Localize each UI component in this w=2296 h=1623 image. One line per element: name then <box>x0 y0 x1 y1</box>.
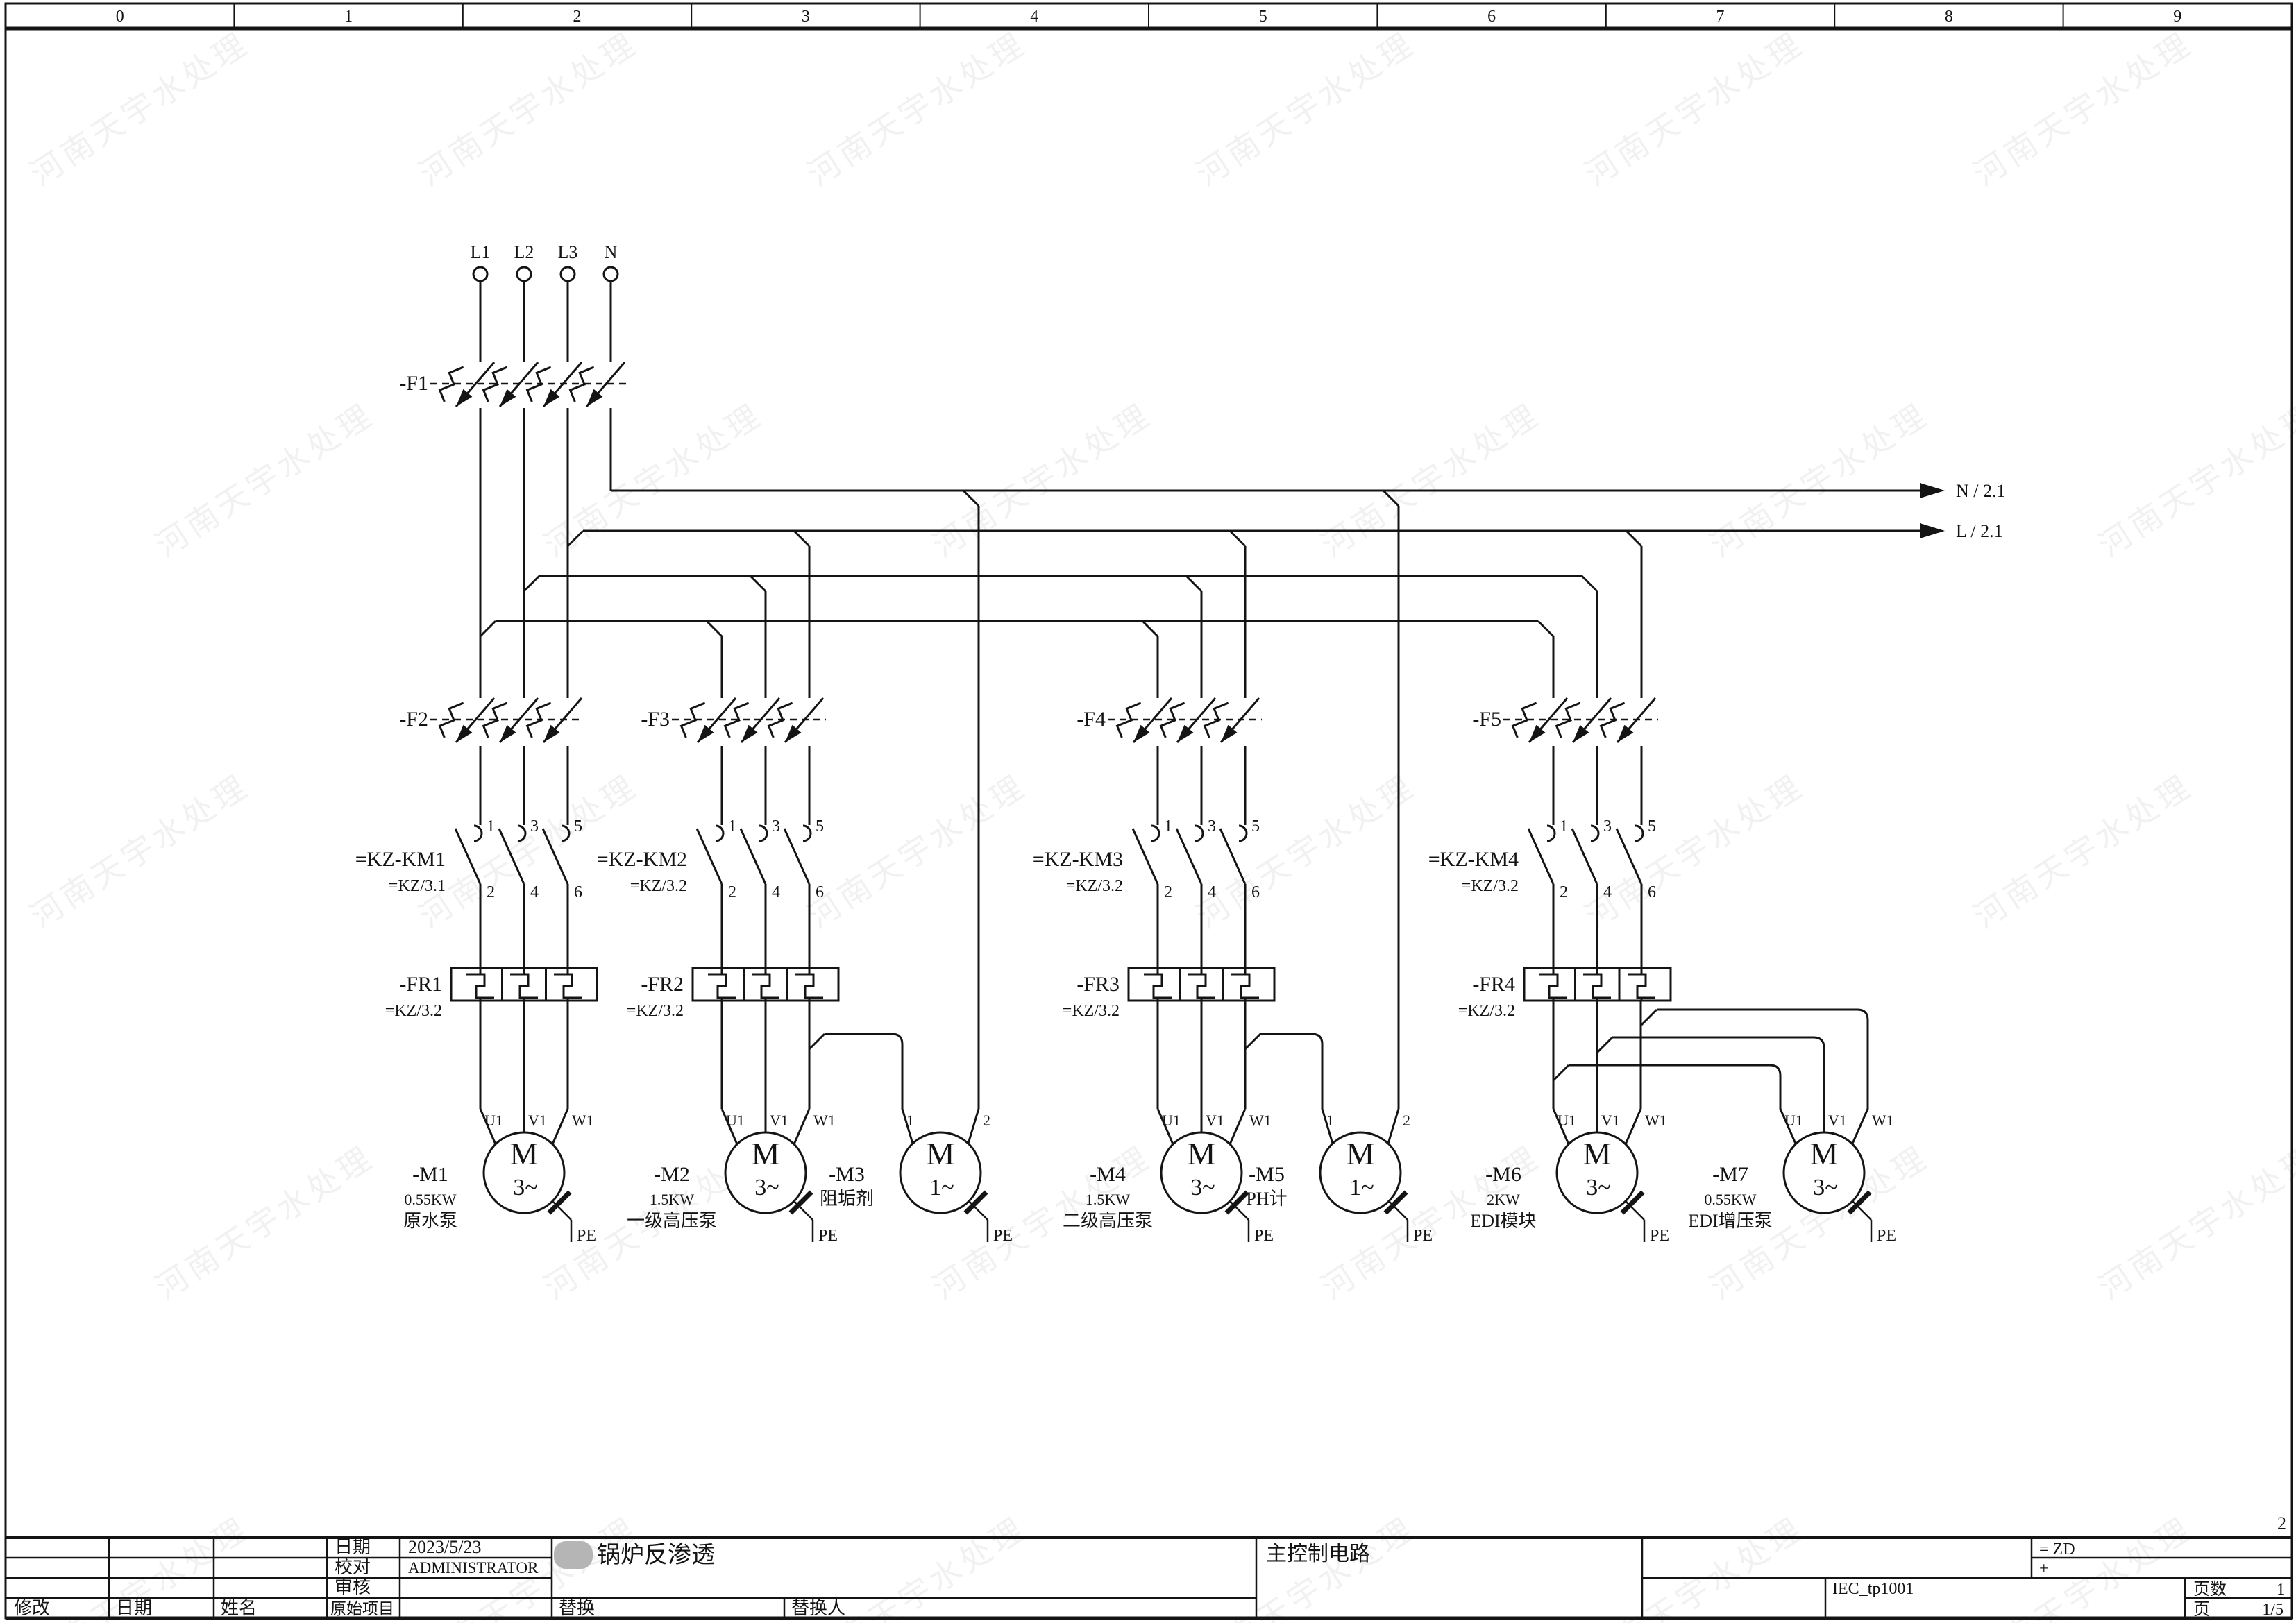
bus-jog <box>1553 1065 1569 1080</box>
watermark: 河南天宇水处理 <box>1704 396 1935 563</box>
watermark: 河南天宇水处理 <box>1968 767 2199 935</box>
contactor-label: =KZ-KM4 <box>1428 848 1519 871</box>
contactor-ref: =KZ/3.2 <box>630 877 687 895</box>
bus-jog <box>1626 531 1641 546</box>
contactor-ref: =KZ/3.2 <box>1462 877 1519 895</box>
terminal-circle <box>517 267 531 281</box>
contact-number: 2 <box>1560 883 1568 901</box>
motor-id: -M4 <box>1090 1163 1126 1186</box>
motor-name: 一级高压泵 <box>627 1211 717 1231</box>
contact-number: 1 <box>487 817 495 835</box>
template-name: IEC_tp1001 <box>1832 1580 1914 1598</box>
bus-jog <box>750 576 766 591</box>
ruler-number: 3 <box>802 8 810 26</box>
wire <box>1626 1109 1641 1144</box>
contact-terminal <box>1547 826 1555 841</box>
bus-jog <box>1597 1037 1612 1053</box>
motor-type: 1~ <box>929 1175 954 1200</box>
contactor-label: =KZ-KM3 <box>1033 848 1123 871</box>
bus-jog <box>1245 1034 1260 1049</box>
watermark: 河南天宇水处理 <box>24 25 255 192</box>
watermark: 河南天宇水处理 <box>413 25 644 192</box>
motor-id: -M5 <box>1249 1163 1285 1186</box>
drawing-frame <box>6 3 2292 1618</box>
ruler-number: 2 <box>573 8 582 26</box>
contact-number: 2 <box>487 883 495 901</box>
watermark: 河南天宇水处理 <box>1968 1510 2199 1623</box>
bus-jog <box>524 576 539 591</box>
contact-terminal <box>1151 826 1159 841</box>
contact-number: 3 <box>1208 817 1216 835</box>
bus-jog <box>1641 1010 1657 1025</box>
wire-path <box>825 1034 913 1144</box>
wire <box>794 1109 809 1144</box>
terminal-label: L1 <box>471 242 491 262</box>
motor-symbol: M <box>1347 1136 1375 1171</box>
motor-type: 3~ <box>1190 1175 1215 1200</box>
motor-terminal: W1 <box>572 1112 594 1129</box>
contact-blade <box>1572 829 1597 884</box>
relay-element <box>510 974 538 998</box>
replace-label: 替换 <box>559 1598 595 1618</box>
motor-type: 3~ <box>754 1175 779 1200</box>
contactor-ref: =KZ/3.1 <box>389 877 446 895</box>
bus-jog <box>707 621 722 636</box>
motor-name: PH计 <box>1246 1189 1287 1209</box>
relay-element <box>708 974 736 998</box>
relay-element <box>554 974 582 998</box>
contact-number: 4 <box>772 883 780 901</box>
bus-jog <box>1230 531 1245 546</box>
watermark: 河南天宇水处理 <box>1579 1510 1810 1623</box>
breaker-label: -F4 <box>1077 708 1106 731</box>
pages-label: 页数 <box>2193 1580 2227 1599</box>
wire <box>552 1109 568 1144</box>
bus-jog <box>963 491 979 506</box>
contact-terminal <box>1195 826 1203 841</box>
relay-element <box>795 974 823 998</box>
motor-terminal: 2 <box>1403 1112 1410 1129</box>
watermark: 河南天宇水处理 <box>2093 1139 2296 1306</box>
bus-jog <box>809 1034 825 1049</box>
motor-symbol: M <box>927 1136 955 1171</box>
contact-terminal <box>759 826 767 841</box>
motor-terminal: 1 <box>1326 1112 1334 1129</box>
contact-number: 2 <box>728 883 736 901</box>
date-label: 日期 <box>335 1537 371 1557</box>
schematic-layer: 河南天宇水处理河南天宇水处理河南天宇水处理河南天宇水处理河南天宇水处理河南天宇水… <box>24 4 2296 1623</box>
motor-terminal: W1 <box>1645 1112 1667 1129</box>
relay-label: -FR1 <box>399 973 442 996</box>
contact-number: 4 <box>530 883 539 901</box>
check-value: ADMINISTRATOR <box>408 1559 539 1577</box>
contact-blade <box>1133 829 1158 884</box>
bus-n-arrow <box>1920 483 1945 498</box>
contactor-label: =KZ-KM2 <box>597 848 687 871</box>
motor-name: EDI增压泵 <box>1688 1211 1772 1231</box>
modify-label: 修改 <box>14 1598 50 1618</box>
contact-number: 6 <box>574 883 582 901</box>
name-label: 姓名 <box>221 1598 257 1618</box>
motor-terminal: U1 <box>484 1112 503 1129</box>
pe-label: PE <box>1413 1227 1433 1245</box>
motor-terminal: U1 <box>726 1112 745 1129</box>
contact-number: 1 <box>728 817 736 835</box>
contactor-ref: =KZ/3.2 <box>1066 877 1123 895</box>
replacer-label: 替换人 <box>791 1598 845 1618</box>
terminal-circle <box>604 267 618 281</box>
project-title: 锅炉反渗透 <box>597 1542 715 1568</box>
motor-terminal: W1 <box>813 1112 836 1129</box>
motor-id: -M7 <box>1712 1163 1748 1186</box>
contact-terminal <box>1591 826 1598 841</box>
bus-jog <box>1186 576 1201 591</box>
date-value: 2023/5/23 <box>408 1537 481 1557</box>
contact-blade <box>741 829 766 884</box>
motor-terminal: U1 <box>1558 1112 1576 1129</box>
contact-blade <box>784 829 809 884</box>
contact-blade <box>1528 829 1553 884</box>
ruler-number: 9 <box>2173 8 2181 26</box>
motor-terminal: V1 <box>528 1112 547 1129</box>
motor-terminal: 2 <box>983 1112 990 1129</box>
contact-terminal <box>716 826 723 841</box>
check-label: 校对 <box>335 1557 371 1577</box>
terminal-label: L2 <box>514 242 534 262</box>
contact-number: 3 <box>1603 817 1612 835</box>
relay-element <box>1583 974 1611 998</box>
motor-terminal: W1 <box>1872 1112 1894 1129</box>
contact-number: 3 <box>772 817 780 835</box>
bus-jog <box>480 621 496 636</box>
wire <box>968 1109 979 1144</box>
pe-label: PE <box>818 1227 838 1245</box>
contact-number: 4 <box>1603 883 1612 901</box>
motor-name: 二级高压泵 <box>1063 1211 1153 1231</box>
motor-symbol: M <box>1188 1136 1216 1171</box>
bus-n-label: N / 2.1 <box>1956 481 2006 501</box>
motor-symbol: M <box>1583 1136 1612 1171</box>
motor-id: -M1 <box>412 1163 448 1186</box>
watermark: 河南天宇水处理 <box>802 25 1033 192</box>
watermark: 河南天宇水处理 <box>149 396 380 563</box>
relay-label: -FR4 <box>1472 973 1515 996</box>
watermark: 河南天宇水处理 <box>538 396 769 563</box>
redaction-blob <box>554 1541 593 1569</box>
wire <box>1230 1109 1245 1144</box>
contact-number: 5 <box>574 817 582 835</box>
contact-number: 5 <box>1251 817 1260 835</box>
contact-terminal <box>474 826 482 841</box>
plus-code: + <box>2039 1560 2049 1578</box>
breaker-label: -F1 <box>399 372 428 395</box>
breaker-label: -F2 <box>399 708 428 731</box>
bus-l-label: L / 2.1 <box>1956 521 2003 541</box>
relay-element <box>752 974 779 998</box>
contact-number: 1 <box>1164 817 1172 835</box>
pages-value: 1 <box>2277 1581 2285 1599</box>
pe-label: PE <box>993 1227 1013 1245</box>
wire <box>1388 1109 1399 1144</box>
pe-label: PE <box>577 1227 596 1245</box>
contact-number: 6 <box>1251 883 1260 901</box>
ruler-number: 0 <box>116 8 124 26</box>
motor-symbol: M <box>1810 1136 1839 1171</box>
relay-ref: =KZ/3.2 <box>1458 1002 1515 1020</box>
motor-type: 1~ <box>1349 1175 1374 1200</box>
drawing-title: 主控制电路 <box>1266 1543 1370 1565</box>
watermark: 河南天宇水处理 <box>927 396 1158 563</box>
motor-type: 3~ <box>1586 1175 1610 1200</box>
pe-label: PE <box>1254 1227 1274 1245</box>
motor-power: 0.55KW <box>1704 1191 1756 1208</box>
relay-ref: =KZ/3.2 <box>385 1002 442 1020</box>
watermark: 河南天宇水处理 <box>1190 25 1421 192</box>
contact-number: 2 <box>1164 883 1172 901</box>
page-marker: 2 <box>2277 1513 2286 1533</box>
bus-l-arrow <box>1920 523 1945 538</box>
contact-terminal <box>1239 826 1247 841</box>
motor-name: 原水泵 <box>403 1211 457 1231</box>
title-block-text: 日期 2023/5/23 校对 ADMINISTRATOR 审核 修改 日期 姓… <box>14 1513 2286 1619</box>
watermark: 河南天宇水处理 <box>802 767 1033 935</box>
relay-element <box>1231 974 1259 998</box>
watermark: 河南天宇水处理 <box>1579 767 1810 935</box>
motor-id: -M6 <box>1485 1163 1521 1186</box>
review-label: 审核 <box>335 1577 371 1597</box>
motor-power: 0.55KW <box>404 1191 456 1208</box>
contact-blade <box>1220 829 1245 884</box>
motor-symbol: M <box>752 1136 780 1171</box>
contact-number: 6 <box>816 883 824 901</box>
breaker-label: -F3 <box>641 708 670 731</box>
contact-terminal <box>803 826 811 841</box>
breaker-label: -F5 <box>1472 708 1501 731</box>
contact-blade <box>1176 829 1201 884</box>
ruler-number: 7 <box>1716 8 1725 26</box>
contact-number: 5 <box>816 817 824 835</box>
relay-element <box>1188 974 1215 998</box>
ruler-number: 1 <box>344 8 353 26</box>
motor-power: 2KW <box>1487 1191 1520 1208</box>
terminal-circle <box>473 267 487 281</box>
date2-label: 日期 <box>116 1598 152 1618</box>
contact-number: 5 <box>1648 817 1656 835</box>
watermark: 河南天宇水处理 <box>1190 767 1421 935</box>
relay-element <box>466 974 494 998</box>
motor-type: 3~ <box>513 1175 537 1200</box>
contact-number: 4 <box>1208 883 1216 901</box>
motor-terminal: U1 <box>1162 1112 1181 1129</box>
motor-terminal: V1 <box>1601 1112 1620 1129</box>
ruler-number: 4 <box>1030 8 1038 26</box>
terminal-label: L3 <box>558 242 578 262</box>
contact-number: 3 <box>530 817 539 835</box>
watermark: 河南天宇水处理 <box>1579 25 1810 192</box>
relay-label: -FR3 <box>1077 973 1120 996</box>
relay-ref: =KZ/3.2 <box>627 1002 684 1020</box>
motor-id: -M2 <box>654 1163 690 1186</box>
motor-terminal: W1 <box>1249 1112 1272 1129</box>
schematic-drawing: 河南天宇水处理河南天宇水处理河南天宇水处理河南天宇水处理河南天宇水处理河南天宇水… <box>0 0 2296 1623</box>
motor-symbol: M <box>510 1136 539 1171</box>
relay-ref: =KZ/3.2 <box>1063 1002 1120 1020</box>
pe-label: PE <box>1650 1227 1669 1245</box>
contact-terminal <box>1635 826 1643 841</box>
relay-label: -FR2 <box>641 973 684 996</box>
contact-number: 1 <box>1560 817 1568 835</box>
ruler-number: 5 <box>1259 8 1267 26</box>
motor-terminal: U1 <box>1784 1112 1803 1129</box>
watermark: 河南天宇水处理 <box>2093 396 2296 563</box>
motor-name: 阻垢剂 <box>820 1189 874 1209</box>
relay-element <box>1628 974 1655 998</box>
original-project-label: 原始项目 <box>330 1600 394 1617</box>
relay-element <box>1539 974 1567 998</box>
bus-jog <box>1142 621 1158 636</box>
terminal-circle <box>561 267 575 281</box>
watermark: 河南天宇水处理 <box>1968 25 2199 192</box>
contactor-label: =KZ-KM1 <box>355 848 446 871</box>
motor-power: 1.5KW <box>1086 1191 1130 1208</box>
contact-number: 6 <box>1648 883 1656 901</box>
motor-terminal: V1 <box>770 1112 788 1129</box>
outer-border <box>6 3 2292 1618</box>
watermark: 河南天宇水处理 <box>24 767 255 935</box>
bus-jog <box>1538 621 1553 636</box>
motor-terminal: V1 <box>1206 1112 1224 1129</box>
page-label: 页 <box>2193 1601 2210 1619</box>
pe-label: PE <box>1877 1227 1896 1245</box>
watermark: 河南天宇水处理 <box>1315 396 1546 563</box>
bus-jog <box>794 531 809 546</box>
motor-power: 1.5KW <box>650 1191 694 1208</box>
motor-terminal: 1 <box>906 1112 914 1129</box>
terminal-label: N <box>605 242 618 262</box>
watermark: 河南天宇水处理 <box>1190 1510 1421 1623</box>
page-value: 1/5 <box>2262 1601 2284 1619</box>
location-code: = ZD <box>2039 1540 2075 1558</box>
motor-type: 3~ <box>1813 1175 1837 1200</box>
relay-element <box>1144 974 1172 998</box>
contact-blade <box>697 829 722 884</box>
ruler-number: 6 <box>1487 8 1496 26</box>
bus-jog <box>1582 576 1597 591</box>
motor-name: EDI模块 <box>1470 1211 1536 1231</box>
watermark: 河南天宇水处理 <box>149 1139 380 1306</box>
motor-id: -M3 <box>829 1163 865 1186</box>
ruler-number: 8 <box>1945 8 1953 26</box>
motor-terminal: V1 <box>1828 1112 1847 1129</box>
